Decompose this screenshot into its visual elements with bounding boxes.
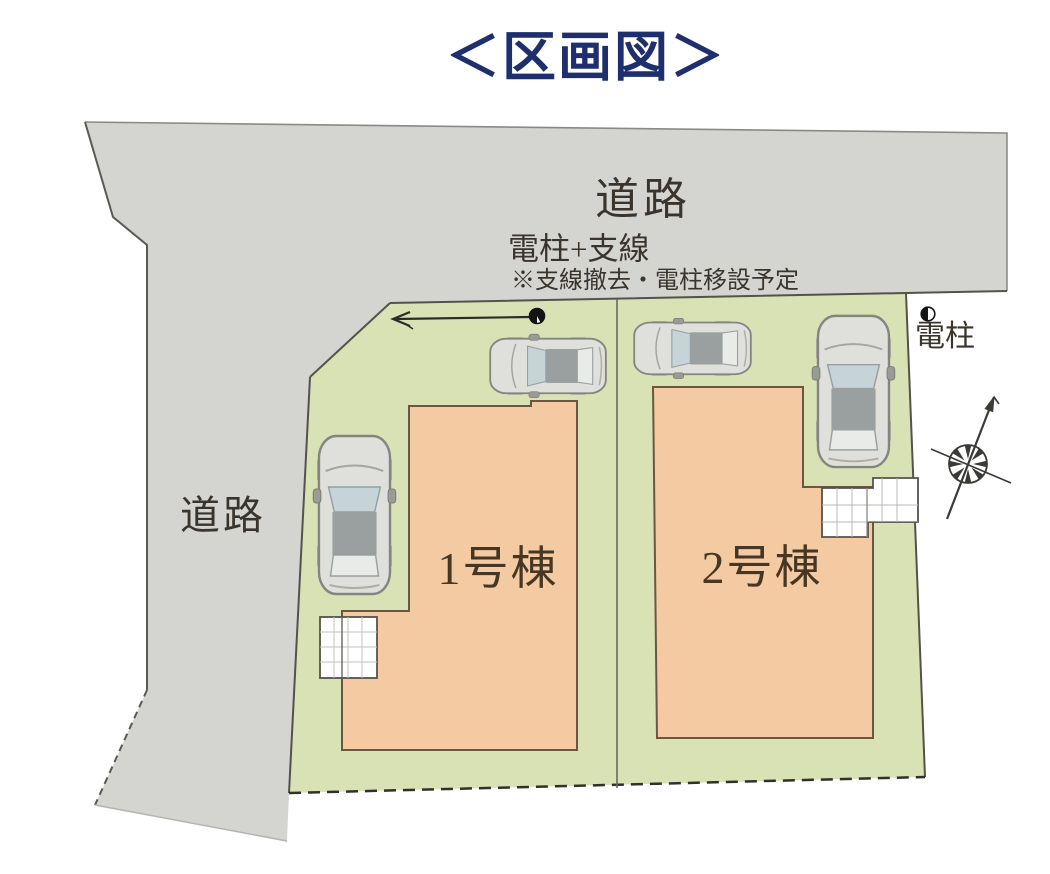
pole-right-label: 電柱	[915, 322, 975, 352]
road-top-label: 道路	[595, 178, 691, 222]
car-top-view-icon	[634, 318, 751, 378]
building-1-label: 1号棟	[438, 546, 559, 592]
utility-pole-symbol-right	[921, 307, 935, 321]
car-top-view-icon	[313, 436, 396, 594]
site-plan-canvas: ＜区画図＞ 道路 電柱+支線 ※支線撤去・電柱移設予定 道路 電柱 1号棟 2号…	[0, 0, 1050, 874]
plan-drawing	[0, 0, 1050, 874]
compass-north-arrow-icon	[931, 397, 1011, 519]
pole-wire-note: ※支線撤去・電柱移設予定	[511, 269, 799, 293]
page-title: ＜区画図＞	[446, 13, 726, 92]
building-2-label: 2号棟	[702, 545, 823, 591]
utility-pole-symbol-on-plot	[530, 309, 545, 324]
car-top-view-icon	[490, 334, 606, 397]
road-left-label: 道路	[180, 496, 266, 536]
pole-wire-label: 電柱+支線	[508, 234, 649, 265]
car-top-view-icon	[812, 316, 895, 467]
terrace-grid-building1	[320, 617, 377, 678]
